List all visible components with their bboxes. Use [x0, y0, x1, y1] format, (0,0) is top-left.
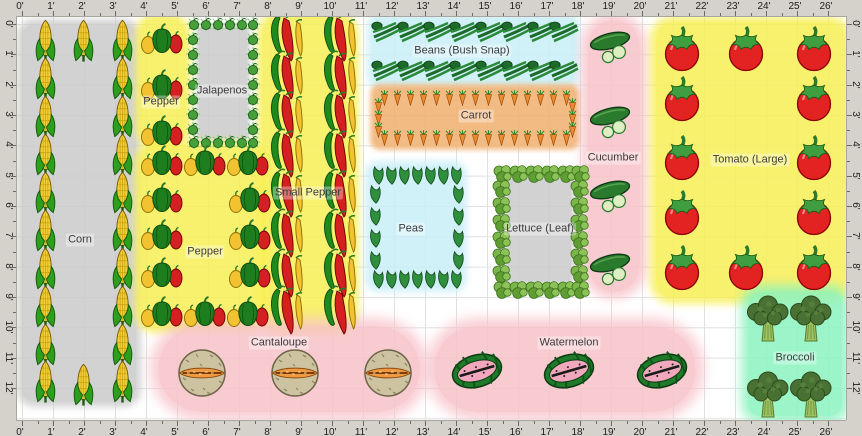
ruler-tick: [565, 421, 566, 424]
pepper-plant-icon[interactable]: [140, 143, 184, 177]
ruler-tick: [847, 327, 852, 328]
ruler-tick: [847, 343, 850, 344]
ruler-tick: [487, 11, 488, 16]
ruler-label: 13': [412, 1, 434, 13]
ruler-tick: [720, 13, 721, 16]
carrot-plant-icon[interactable]: [393, 130, 402, 146]
melon-plant-icon[interactable]: [450, 349, 504, 393]
bean-plant-icon[interactable]: [549, 60, 579, 82]
ruler-label: 22': [691, 1, 713, 13]
ruler-tick: [286, 421, 287, 424]
ruler-tick: [565, 13, 566, 16]
ruler-tick: [673, 421, 674, 426]
ruler-tick: [797, 421, 798, 426]
ruler-label: 11': [350, 1, 372, 13]
corn-plant-icon[interactable]: [72, 19, 95, 62]
broccoli-plant-icon[interactable]: [788, 371, 834, 421]
ruler-tick: [13, 343, 16, 344]
corn-plant-icon[interactable]: [111, 95, 134, 138]
tomato-plant-icon[interactable]: [793, 135, 835, 181]
tomato-plant-icon[interactable]: [793, 76, 835, 122]
ruler-label: 6': [195, 1, 217, 13]
broccoli-plant-icon[interactable]: [745, 295, 791, 345]
ruler-tick: [100, 421, 101, 424]
ruler-tick: [11, 24, 16, 25]
corn-plant-icon[interactable]: [111, 360, 134, 403]
ruler-tick: [720, 421, 721, 424]
ruler-tick: [766, 421, 767, 426]
tomato-plant-icon[interactable]: [661, 76, 703, 122]
ruler-tick: [363, 11, 364, 16]
ruler-tick: [131, 421, 132, 424]
ruler-label: 10': [319, 427, 341, 436]
broccoli-plant-icon[interactable]: [745, 371, 791, 421]
carrot-plant-icon[interactable]: [471, 90, 480, 106]
corn-plant-icon[interactable]: [111, 171, 134, 214]
ruler-tick: [13, 100, 16, 101]
ruler-label: 9': [288, 427, 310, 436]
ruler-tick: [177, 11, 178, 16]
ruler-label: 3': [102, 1, 124, 13]
ruler-tick: [11, 327, 16, 328]
cuke-plant-icon[interactable]: [588, 28, 636, 66]
ruler-label: 4': [133, 427, 155, 436]
pepper-plant-icon[interactable]: [226, 143, 270, 177]
ruler-tick: [658, 13, 659, 16]
pea-plant-icon[interactable]: [369, 207, 382, 226]
melon-plant-icon[interactable]: [542, 349, 596, 393]
ruler-tick: [193, 13, 194, 16]
corn-plant-icon[interactable]: [111, 285, 134, 328]
corn-plant-icon[interactable]: [111, 133, 134, 176]
bed-label-cantaloupe: Cantaloupe: [249, 337, 309, 350]
ruler-tick: [410, 13, 411, 16]
ruler-label: 7': [226, 1, 248, 13]
corn-plant-icon[interactable]: [111, 19, 134, 62]
ruler-label: 7': [226, 427, 248, 436]
ruler-label: 10': [319, 1, 341, 13]
cantaloupe-plant-icon[interactable]: [362, 348, 414, 398]
jalapeno-plant-icon[interactable]: [186, 122, 200, 136]
ruler-tick: [13, 373, 16, 374]
carrot-plant-icon[interactable]: [536, 90, 545, 106]
ruler-tick: [394, 421, 395, 426]
carrot-plant-icon[interactable]: [374, 122, 383, 138]
pea-plant-icon[interactable]: [385, 166, 398, 185]
tomato-plant-icon[interactable]: [793, 245, 835, 291]
ruler-tick: [689, 421, 690, 424]
ruler-tick: [115, 11, 116, 16]
corn-plant-icon[interactable]: [34, 57, 57, 100]
ruler-tick: [69, 421, 70, 424]
ruler-label: 11': [350, 427, 372, 436]
carrot-plant-icon[interactable]: [484, 90, 493, 106]
carrot-plant-icon[interactable]: [523, 90, 532, 106]
pea-plant-icon[interactable]: [450, 270, 463, 289]
chili-plant-icon[interactable]: [267, 284, 305, 336]
pea-plant-icon[interactable]: [385, 270, 398, 289]
ruler-tick: [518, 421, 519, 426]
tomato-plant-icon[interactable]: [725, 26, 767, 72]
tomato-plant-icon[interactable]: [725, 245, 767, 291]
bed-label-watermelon: Watermelon: [538, 337, 601, 350]
carrot-plant-icon[interactable]: [458, 90, 467, 106]
corn-plant-icon[interactable]: [34, 285, 57, 328]
ruler-tick: [487, 421, 488, 426]
ruler-label: 22': [691, 427, 713, 436]
ruler-tick: [847, 39, 850, 40]
ruler-tick: [11, 54, 16, 55]
corn-plant-icon[interactable]: [34, 247, 57, 290]
ruler-label: 19': [598, 1, 620, 13]
ruler-tick: [255, 421, 256, 424]
pepper-plant-icon[interactable]: [183, 294, 227, 328]
ruler-label: 18': [567, 1, 589, 13]
ruler-left: 0'1'2'3'4'5'6'7'8'9'10'11'12': [0, 16, 17, 420]
carrot-plant-icon[interactable]: [419, 130, 428, 146]
ruler-tick: [782, 421, 783, 424]
ruler-tick: [658, 421, 659, 424]
ruler-tick: [53, 421, 54, 426]
pea-plant-icon[interactable]: [411, 166, 424, 185]
ruler-tick: [847, 161, 850, 162]
bed-label-carrot: Carrot: [459, 110, 494, 123]
ruler-tick: [115, 421, 116, 426]
ruler-tick: [13, 252, 16, 253]
corn-plant-icon[interactable]: [34, 19, 57, 62]
melon-plant-icon[interactable]: [635, 349, 689, 393]
pea-plant-icon[interactable]: [372, 166, 385, 185]
ruler-tick: [673, 11, 674, 16]
ruler-tick: [751, 421, 752, 424]
carrot-plant-icon[interactable]: [393, 90, 402, 106]
ruler-label: 19': [598, 427, 620, 436]
pea-plant-icon[interactable]: [452, 229, 465, 248]
ruler-label: 20': [629, 427, 651, 436]
pea-plant-icon[interactable]: [437, 166, 450, 185]
ruler-tick: [534, 13, 535, 16]
ruler-tick: [472, 421, 473, 424]
ruler-tick: [580, 421, 581, 426]
ruler-tick: [549, 11, 550, 16]
ruler-tick: [239, 11, 240, 16]
ruler-label: 26': [815, 427, 837, 436]
corn-plant-icon[interactable]: [34, 209, 57, 252]
ruler-tick: [847, 282, 850, 283]
pea-plant-icon[interactable]: [398, 270, 411, 289]
ruler-tick: [456, 11, 457, 16]
carrot-plant-icon[interactable]: [484, 130, 493, 146]
corn-plant-icon[interactable]: [72, 363, 95, 406]
bed-label-beans: Beans (Bush Snap): [412, 45, 511, 58]
ruler-tick: [847, 236, 852, 237]
ruler-tick: [847, 70, 850, 71]
ruler-tick: [813, 13, 814, 16]
pea-plant-icon[interactable]: [424, 270, 437, 289]
bed-label-tomato: Tomato (Large): [711, 154, 790, 167]
ruler-tick: [534, 421, 535, 424]
carrot-plant-icon[interactable]: [406, 90, 415, 106]
jalapeno-plant-icon[interactable]: [246, 122, 260, 136]
ruler-label: 17': [536, 427, 558, 436]
ruler-tick: [847, 191, 850, 192]
pepper-plant-icon[interactable]: [228, 255, 272, 289]
pea-plant-icon[interactable]: [411, 270, 424, 289]
pepper-plant-icon[interactable]: [140, 255, 184, 289]
pea-plant-icon[interactable]: [398, 166, 411, 185]
ruler-tick: [146, 421, 147, 426]
bed-label-peas: Peas: [396, 223, 425, 236]
jalapeno-plant-icon[interactable]: [246, 62, 260, 76]
lettuce-plant-icon[interactable]: [570, 264, 589, 283]
ruler-tick: [766, 11, 767, 16]
ruler-label: 13': [412, 427, 434, 436]
corn-plant-icon[interactable]: [34, 95, 57, 138]
ruler-tick: [828, 421, 829, 426]
pea-plant-icon[interactable]: [450, 166, 463, 185]
ruler-label: 14': [443, 1, 465, 13]
carrot-plant-icon[interactable]: [445, 90, 454, 106]
ruler-label: 5': [164, 1, 186, 13]
ruler-tick: [828, 11, 829, 16]
corn-plant-icon[interactable]: [111, 209, 134, 252]
pepper-plant-icon[interactable]: [140, 113, 184, 147]
ruler-tick: [332, 421, 333, 426]
carrot-plant-icon[interactable]: [510, 90, 519, 106]
ruler-tick: [11, 388, 16, 389]
ruler-tick: [13, 161, 16, 162]
jalapeno-plant-icon[interactable]: [186, 47, 200, 61]
ruler-tick: [270, 421, 271, 426]
ruler-tick: [22, 11, 23, 16]
pea-plant-icon[interactable]: [369, 229, 382, 248]
ruler-label: 15': [474, 1, 496, 13]
tomato-plant-icon[interactable]: [793, 190, 835, 236]
ruler-tick: [735, 421, 736, 426]
pepper-plant-icon[interactable]: [183, 143, 227, 177]
jalapeno-plant-icon[interactable]: [186, 107, 200, 121]
ruler-tick: [38, 13, 39, 16]
ruler-tick: [11, 176, 16, 177]
carrot-plant-icon[interactable]: [549, 130, 558, 146]
pea-plant-icon[interactable]: [437, 270, 450, 289]
ruler-label: 21': [660, 427, 682, 436]
ruler-tick: [847, 358, 852, 359]
ruler-tick: [847, 206, 852, 207]
ruler-label: 24': [753, 1, 775, 13]
jalapeno-plant-icon[interactable]: [246, 107, 260, 121]
bean-plant-icon[interactable]: [549, 21, 579, 43]
ruler-label: 17': [536, 1, 558, 13]
bed-label-pepper-main: Pepper: [185, 246, 224, 259]
ruler-label: 25': [784, 1, 806, 13]
ruler-label: 18': [567, 427, 589, 436]
ruler-tick: [11, 206, 16, 207]
lettuce-plant-icon[interactable]: [492, 264, 511, 283]
ruler-label: 26': [815, 1, 837, 13]
carrot-plant-icon[interactable]: [497, 90, 506, 106]
ruler-label: 9': [288, 1, 310, 13]
carrot-plant-icon[interactable]: [510, 130, 519, 146]
chili-plant-icon[interactable]: [320, 284, 358, 336]
tomato-plant-icon[interactable]: [661, 190, 703, 236]
ruler-tick: [704, 421, 705, 426]
ruler-tick: [847, 176, 852, 177]
ruler-tick: [69, 13, 70, 16]
ruler-label: 12': [381, 427, 403, 436]
ruler-tick: [627, 421, 628, 424]
carrot-plant-icon[interactable]: [568, 122, 577, 138]
cantaloupe-plant-icon[interactable]: [269, 348, 321, 398]
ruler-tick: [549, 421, 550, 426]
jalapeno-plant-icon[interactable]: [246, 17, 260, 31]
ruler-tick: [797, 11, 798, 16]
ruler-tick: [782, 13, 783, 16]
carrot-plant-icon[interactable]: [471, 130, 480, 146]
ruler-tick: [301, 421, 302, 426]
ruler-tick: [425, 11, 426, 16]
ruler-corner: [0, 420, 16, 436]
corn-plant-icon[interactable]: [34, 360, 57, 403]
ruler-tick: [847, 373, 850, 374]
bed-label-broccoli: Broccoli: [773, 352, 816, 365]
ruler-tick: [100, 13, 101, 16]
broccoli-plant-icon[interactable]: [788, 295, 834, 345]
carrot-plant-icon[interactable]: [406, 130, 415, 146]
ruler-tick: [38, 421, 39, 424]
ruler-tick: [847, 145, 852, 146]
ruler-tick: [704, 11, 705, 16]
ruler-tick: [53, 11, 54, 16]
ruler-tick: [456, 421, 457, 426]
ruler-label: 4': [133, 1, 155, 13]
pepper-plant-icon[interactable]: [140, 217, 184, 251]
cuke-plant-icon[interactable]: [588, 250, 636, 288]
carrot-plant-icon[interactable]: [445, 130, 454, 146]
pepper-plant-icon[interactable]: [140, 21, 184, 55]
ruler-tick: [193, 421, 194, 424]
ruler-tick: [847, 24, 852, 25]
ruler-tick: [317, 421, 318, 424]
ruler-tick: [13, 39, 16, 40]
ruler-label: 12': [381, 1, 403, 13]
ruler-tick: [611, 11, 612, 16]
pea-plant-icon[interactable]: [372, 270, 385, 289]
ruler-tick: [847, 221, 850, 222]
ruler-label: 21': [660, 1, 682, 13]
ruler-label: 24': [753, 427, 775, 436]
ruler-tick: [642, 421, 643, 426]
ruler-label: 2': [71, 1, 93, 13]
ruler-tick: [348, 421, 349, 424]
jalapeno-plant-icon[interactable]: [186, 62, 200, 76]
ruler-tick: [348, 13, 349, 16]
tomato-plant-icon[interactable]: [661, 245, 703, 291]
ruler-label: 8': [257, 427, 279, 436]
ruler-tick: [13, 191, 16, 192]
ruler-bottom: 0'1'2'3'4'5'6'7'8'9'10'11'12'13'14'15'16…: [0, 420, 862, 436]
ruler-tick: [580, 11, 581, 16]
ruler-tick: [751, 13, 752, 16]
jalapeno-plant-icon[interactable]: [186, 32, 200, 46]
ruler-tick: [735, 11, 736, 16]
pea-plant-icon[interactable]: [452, 251, 465, 270]
carrot-plant-icon[interactable]: [432, 90, 441, 106]
pepper-plant-icon[interactable]: [226, 294, 270, 328]
ruler-tick: [518, 11, 519, 16]
ruler-tick: [301, 11, 302, 16]
ruler-tick: [146, 11, 147, 16]
carrot-plant-icon[interactable]: [458, 130, 467, 146]
pepper-plant-icon[interactable]: [140, 180, 184, 214]
ruler-tick: [11, 358, 16, 359]
ruler-label: 23': [722, 427, 744, 436]
ruler-tick: [847, 312, 850, 313]
carrot-plant-icon[interactable]: [536, 130, 545, 146]
jalapeno-plant-icon[interactable]: [246, 32, 260, 46]
ruler-tick: [317, 13, 318, 16]
carrot-plant-icon[interactable]: [497, 130, 506, 146]
ruler-label: 3': [102, 427, 124, 436]
pepper-plant-icon[interactable]: [228, 217, 272, 251]
carrot-plant-icon[interactable]: [549, 90, 558, 106]
ruler-tick: [813, 421, 814, 424]
pepper-plant-icon[interactable]: [140, 294, 184, 328]
pea-plant-icon[interactable]: [369, 185, 382, 204]
corn-plant-icon[interactable]: [111, 247, 134, 290]
cuke-plant-icon[interactable]: [588, 103, 636, 141]
ruler-corner: [846, 0, 862, 16]
cuke-plant-icon[interactable]: [588, 177, 636, 215]
corn-plant-icon[interactable]: [34, 171, 57, 214]
ruler-tick: [84, 421, 85, 426]
ruler-tick: [11, 85, 16, 86]
ruler-tick: [224, 13, 225, 16]
carrot-plant-icon[interactable]: [523, 130, 532, 146]
tomato-plant-icon[interactable]: [661, 26, 703, 72]
carrot-plant-icon[interactable]: [419, 90, 428, 106]
bed-label-jalapenos: Jalapenos: [195, 85, 249, 98]
ruler-tick: [208, 421, 209, 426]
ruler-tick: [847, 297, 852, 298]
ruler-tick: [847, 115, 852, 116]
ruler-label: 8': [257, 1, 279, 13]
pea-plant-icon[interactable]: [452, 207, 465, 226]
pea-plant-icon[interactable]: [452, 185, 465, 204]
tomato-plant-icon[interactable]: [661, 135, 703, 181]
ruler-label: 14': [443, 427, 465, 436]
carrot-plant-icon[interactable]: [432, 130, 441, 146]
ruler-tick: [22, 421, 23, 426]
pea-plant-icon[interactable]: [424, 166, 437, 185]
ruler-tick: [224, 421, 225, 424]
ruler-top: 0'1'2'3'4'5'6'7'8'9'10'11'12'13'14'15'16…: [0, 0, 862, 17]
ruler-tick: [13, 221, 16, 222]
ruler-tick: [642, 11, 643, 16]
tomato-plant-icon[interactable]: [793, 26, 835, 72]
cantaloupe-plant-icon[interactable]: [176, 348, 228, 398]
pea-plant-icon[interactable]: [369, 251, 382, 270]
corn-plant-icon[interactable]: [34, 133, 57, 176]
pepper-plant-icon[interactable]: [228, 180, 272, 214]
ruler-tick: [627, 13, 628, 16]
jalapeno-plant-icon[interactable]: [246, 47, 260, 61]
ruler-corner: [846, 420, 862, 436]
ruler-tick: [472, 13, 473, 16]
bed-jalapenos[interactable]: [199, 28, 247, 138]
corn-plant-icon[interactable]: [111, 57, 134, 100]
ruler-tick: [611, 421, 612, 426]
